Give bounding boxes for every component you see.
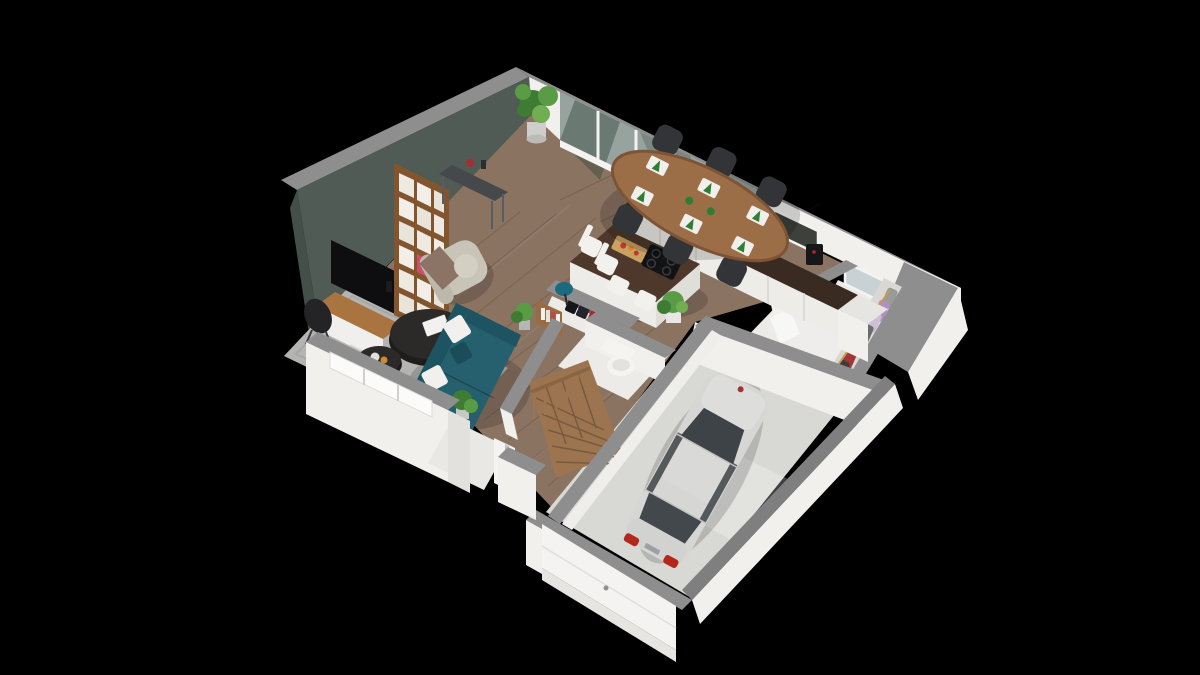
garage-door-handle bbox=[604, 586, 609, 591]
coffee-machine bbox=[806, 244, 823, 265]
alcove-side bbox=[448, 410, 470, 493]
floor-plan-render bbox=[0, 0, 1200, 675]
console-figure bbox=[481, 160, 486, 169]
tv-candle bbox=[386, 281, 392, 292]
console-decor bbox=[466, 159, 474, 167]
door-jamb bbox=[526, 520, 542, 574]
